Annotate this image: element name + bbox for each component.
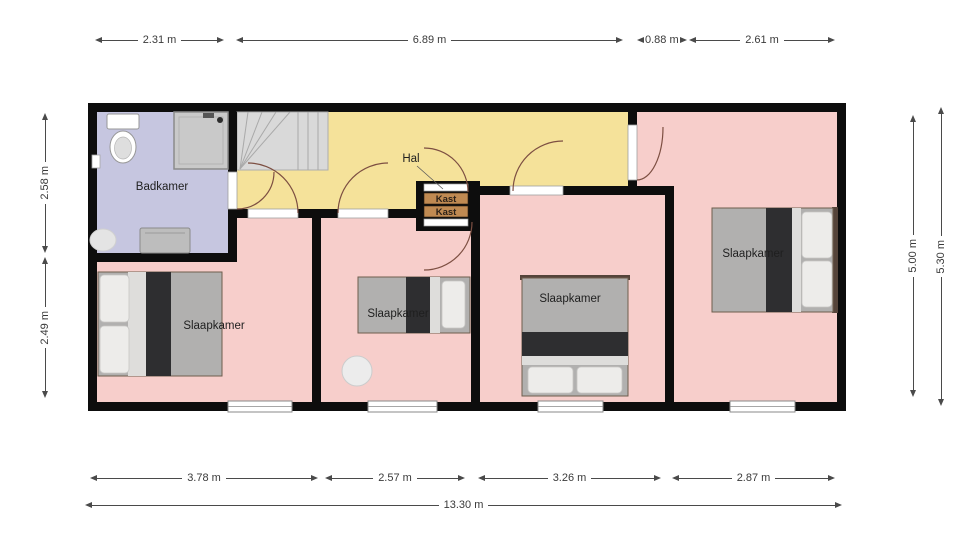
dimension-top-1: 2.31 m [95, 34, 224, 46]
dimension-label: 2.87 m [732, 472, 776, 484]
dimension-bottom-total: 13.30 m [85, 499, 842, 511]
room-label-slaapkamer-s: Slaapkamer [367, 308, 429, 320]
dimension-label: 3.78 m [182, 472, 226, 484]
rug-icon [90, 229, 116, 251]
dimension-right-2: 5.30 m [934, 107, 948, 406]
room-slaapkamer-sw-floor-arm [237, 218, 312, 262]
dimension-label: 0.88 m [644, 34, 680, 46]
dimension-label: 5.00 m [907, 235, 919, 277]
dimension-label: 2.49 m [39, 307, 51, 349]
room-label-slaapkamer-e: Slaapkamer [722, 248, 784, 260]
dimension-label: 5.30 m [935, 236, 947, 278]
bathroom-cabinet-icon [140, 228, 190, 253]
dimension-label: 2.61 m [740, 34, 784, 46]
dimension-label: 2.58 m [39, 162, 51, 204]
dimension-bottom-2: 2.57 m [325, 472, 465, 484]
dimension-left-1: 2.58 m [38, 113, 52, 253]
toilet-icon [107, 114, 139, 163]
room-label-kast-bottom: Kast [436, 207, 457, 218]
svg-text:Hal: Hal [402, 153, 419, 165]
double-bed-e-icon [712, 207, 838, 313]
window-icon [228, 401, 292, 412]
dimension-bottom-4: 2.87 m [672, 472, 835, 484]
window-icon [730, 401, 795, 412]
window-icon [538, 401, 603, 412]
dimension-top-2: 6.89 m [236, 34, 623, 46]
dimension-label: 6.89 m [408, 34, 452, 46]
dimension-label: 2.57 m [373, 472, 417, 484]
staircase-icon [237, 112, 328, 170]
dimension-left-2: 2.49 m [38, 257, 52, 398]
dimension-label: 3.26 m [548, 472, 592, 484]
single-bed-s-icon [358, 277, 470, 333]
shower-icon [174, 112, 228, 169]
stool-icon [342, 356, 372, 386]
room-label-badkamer: Badkamer [136, 181, 189, 193]
dimension-right-1: 5.00 m [906, 115, 920, 397]
floorplan-page: Kast Kast [0, 0, 960, 539]
dimension-top-3: 0.88 m [637, 34, 684, 46]
room-label-slaapkamer-se: Slaapkamer [539, 293, 601, 305]
dimension-label: 13.30 m [439, 499, 489, 511]
dimension-bottom-1: 3.78 m [90, 472, 318, 484]
floor-plan: Kast Kast [0, 0, 960, 539]
window-icon [368, 401, 437, 412]
room-label-slaapkamer-sw: Slaapkamer [183, 320, 245, 332]
dimension-label: 2.31 m [138, 34, 182, 46]
room-label-kast-top: Kast [436, 194, 457, 205]
wall-niche-icon [92, 155, 100, 168]
dimension-top-4: 2.61 m [689, 34, 835, 46]
dimension-bottom-3: 3.26 m [478, 472, 661, 484]
